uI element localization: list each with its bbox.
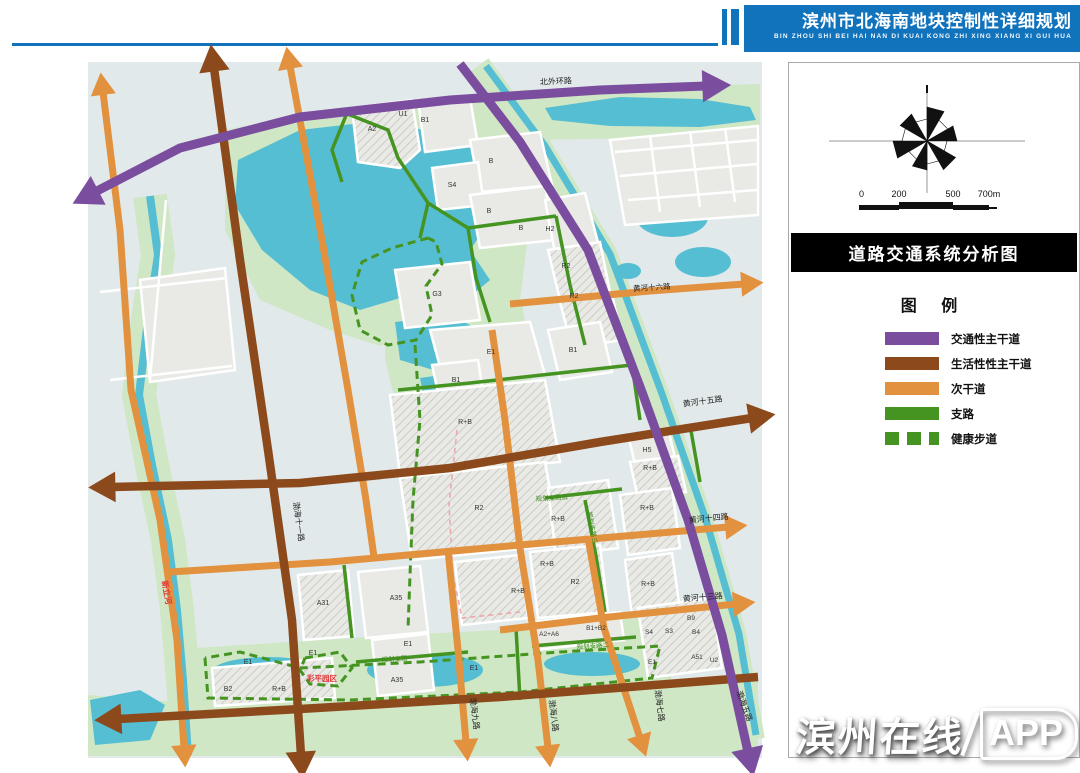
- map-label: R2: [562, 263, 571, 270]
- map-label: R2: [570, 293, 579, 300]
- legend-item: 生活性性主干道: [885, 351, 1079, 376]
- map-label: S4: [645, 629, 653, 636]
- map-label: H2: [546, 226, 555, 233]
- map-label: A2+A6: [539, 631, 559, 638]
- map-label: R+B: [641, 581, 655, 588]
- map-label: R+B: [458, 419, 472, 426]
- map-label: A31: [317, 600, 330, 607]
- dashed-line-swatch: [885, 432, 939, 445]
- watermark-app-badge: APP: [980, 708, 1078, 760]
- map-label: A51: [691, 654, 703, 661]
- map-label: B: [519, 225, 524, 232]
- map-label: E1: [404, 641, 413, 648]
- map-label: B1: [421, 117, 430, 124]
- map-label: E1: [487, 349, 496, 356]
- map-label: R+B: [643, 465, 657, 472]
- land-plot: [358, 566, 428, 638]
- legend-title: 图 例: [789, 292, 1079, 316]
- map-label: R+B: [551, 516, 565, 523]
- map-label: E1: [470, 665, 479, 672]
- map-label: A2: [368, 126, 377, 133]
- legend-item: 次干道: [885, 376, 1079, 401]
- map-label: 彩平园区: [306, 673, 337, 683]
- map-label: B4: [692, 629, 700, 636]
- road-color-swatch: [885, 332, 939, 345]
- legend-item: 支路: [885, 401, 1079, 426]
- map-label: B1+B2: [586, 625, 606, 632]
- legend-item-label: 生活性性主干道: [951, 356, 1032, 372]
- svg-text:700m: 700m: [978, 189, 1001, 199]
- pond: [675, 247, 731, 277]
- map-label: B2: [224, 686, 233, 693]
- compass-rose-icon: [829, 85, 1025, 193]
- svg-text:500: 500: [945, 189, 960, 199]
- compass-and-scale: 0200500700m: [789, 81, 1080, 221]
- pond: [544, 652, 640, 676]
- page: { "header": { "title": "滨州市北海南地块控制性详细规划"…: [0, 0, 1080, 773]
- legend-item: 健康步道: [885, 426, 1079, 451]
- watermark-text: 滨州在线: [794, 705, 966, 763]
- map-title-bar: 道路交通系统分析图: [791, 233, 1077, 272]
- legend-item-label: 健康步道: [951, 431, 997, 447]
- map-label: B: [487, 208, 492, 215]
- map-label: 北外环路: [540, 75, 572, 87]
- legend-list: 交通性主干道生活性性主干道次干道支路健康步道: [885, 326, 1079, 451]
- land-plot: [470, 132, 552, 192]
- land-plot: [620, 488, 680, 555]
- legend-panel: 0200500700m 道路交通系统分析图 图 例 交通性主干道生活性性主干道次…: [788, 62, 1080, 758]
- map-label: E1: [648, 659, 656, 666]
- map-label: A35: [391, 677, 404, 684]
- road-color-swatch: [885, 407, 939, 420]
- map-label: B9: [687, 615, 695, 622]
- map-label: E1: [244, 659, 253, 666]
- map-label: R2: [571, 579, 580, 586]
- map-label: R+B: [511, 588, 525, 595]
- map-label: S4: [448, 182, 457, 189]
- map-label: A35: [390, 595, 403, 602]
- map-label: B1: [569, 347, 578, 354]
- map-label: R+B: [640, 505, 654, 512]
- map-label: G3: [432, 291, 441, 298]
- map-label: E1: [309, 650, 318, 657]
- map-label: R+B: [272, 686, 286, 693]
- watermark: 滨州在线 APP: [796, 705, 1078, 763]
- legend-item: 交通性主干道: [885, 326, 1079, 351]
- legend-item-label: 支路: [951, 406, 974, 422]
- map-label: R2: [475, 505, 484, 512]
- map-label: H5: [643, 447, 652, 454]
- map-label: S3: [665, 628, 673, 635]
- road-color-swatch: [885, 357, 939, 370]
- map-label: U1: [399, 111, 408, 118]
- road-color-swatch: [885, 382, 939, 395]
- legend-item-label: 交通性主干道: [951, 331, 1020, 347]
- legend-item-label: 次干道: [951, 381, 986, 397]
- map-label: U2: [710, 657, 719, 664]
- map-label: B: [489, 158, 494, 165]
- map-label: R+B: [540, 561, 554, 568]
- svg-text:0: 0: [859, 189, 864, 199]
- svg-text:200: 200: [891, 189, 906, 199]
- scale-bar: 0200500700m: [859, 189, 1000, 210]
- map-label: B1: [452, 377, 461, 384]
